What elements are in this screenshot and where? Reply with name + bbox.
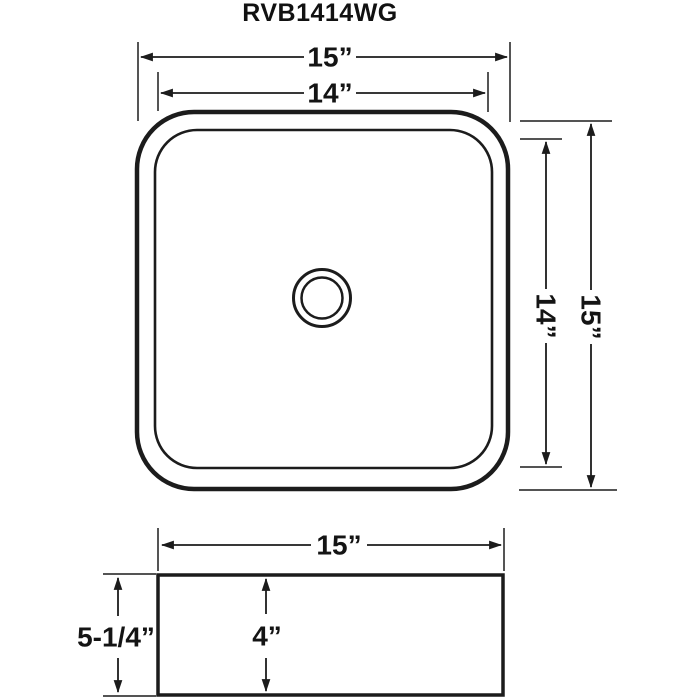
dim-label-outer-height: 15” (576, 294, 607, 339)
dim-front-width: 15” (158, 528, 504, 571)
dim-top-inner-width: 14” (158, 72, 488, 112)
dim-label-inner-height: 14” (531, 293, 562, 338)
dim-side-inner-height: 14” (520, 139, 562, 467)
dim-label-inner-width: 14” (307, 78, 352, 109)
sink-side-profile (158, 575, 503, 695)
top-view (137, 112, 508, 489)
model-number-title: RVB1414WG (242, 0, 398, 27)
dim-label-front-width: 15” (316, 530, 361, 561)
front-view (158, 575, 503, 695)
dim-front-height: 5-1/4” (77, 574, 156, 696)
sink-outer-rim (137, 112, 508, 489)
dim-label-front-height: 5-1/4” (77, 622, 155, 653)
dim-label-outer-width: 15” (307, 42, 352, 73)
spec-sheet: RVB1414WG 15” 14” (0, 0, 700, 700)
dim-label-front-depth: 4” (252, 621, 282, 652)
technical-drawing: RVB1414WG 15” 14” (0, 0, 700, 700)
